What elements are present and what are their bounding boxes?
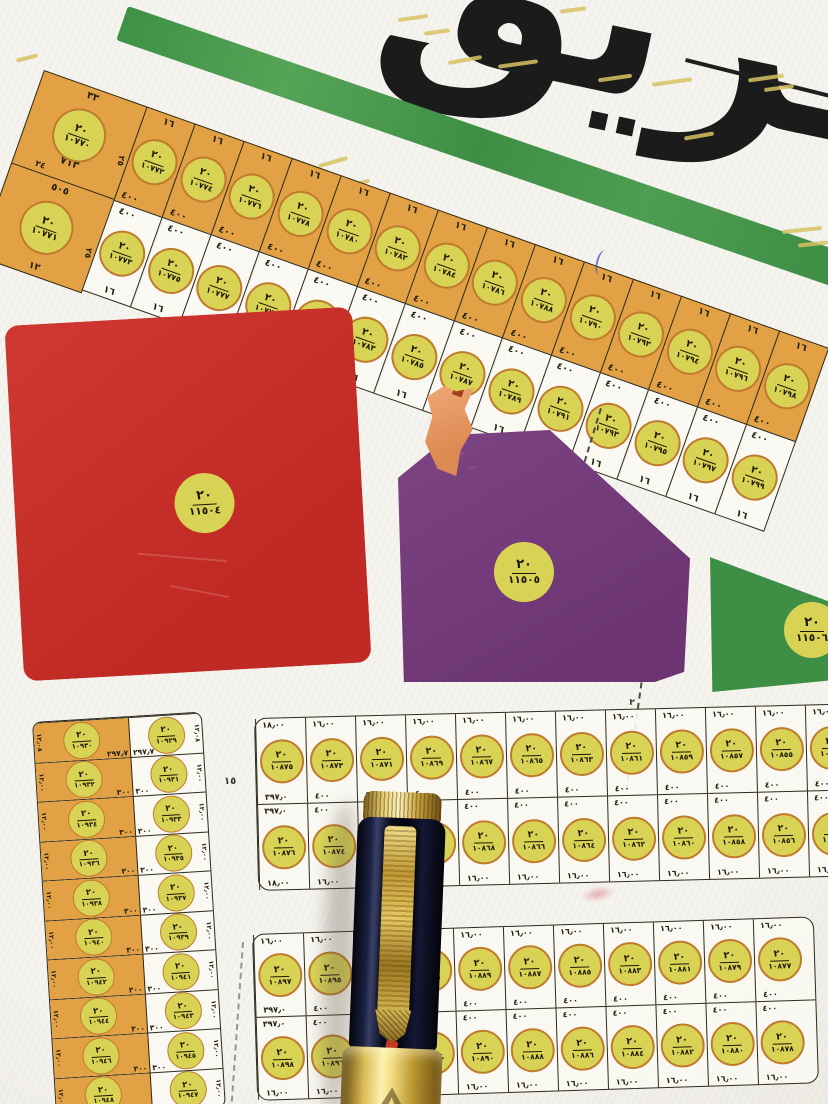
plot-parcel: ١٦٫٠٠ ٢٠ ١٠٨٦٧ ٤٠٠ <box>455 713 507 799</box>
block-number: ٢٠ <box>321 748 341 761</box>
area-label: ٤٠٠ <box>614 798 629 807</box>
area-label: ٤٠٠ <box>514 800 529 809</box>
plot-number: ١٠٨٨٦ <box>571 1050 594 1060</box>
area-label: ٤٠٠ <box>315 791 330 800</box>
plot-parcel: ١٦٫٠٠ ٢٠ ١٠٨٥٧ ٤٠٠ <box>705 707 757 793</box>
plot-parcel-orange: ١٢٫٠٠ ٢٠ ١٠٩٤٠ ٣٠٠ <box>45 915 143 959</box>
plot-number: ١٠٩٤٧ <box>177 1091 198 1101</box>
area-label: ٤٠٠ <box>750 429 770 445</box>
plot-number-sticker: ٢٠ ١٠٩٤٧ <box>168 1070 207 1104</box>
plot-number: ١٠٨٥٦ <box>772 836 795 846</box>
area-label: ٤٠٠ <box>613 1008 628 1017</box>
plot-number-sticker: ٢٠ ١٠٨٧٦ <box>261 824 306 869</box>
dimension-label: ١٦ <box>686 490 701 504</box>
pen <box>331 790 460 1104</box>
plot-number-sticker: ٢٠ ١٠٩٣٢ <box>65 760 104 799</box>
plot-parcel: ١٦٫٠٠ ٢٠ ١٠٨٨٣ ٤٠٠ <box>603 922 656 1006</box>
plot-parcel: ١٦٫٠٠ ٢٠ ١٠٨٥٣ ٤٠٠ <box>805 704 828 790</box>
plot-parcel: ٤٠٠ ٢٠ ١٠٨٨٦ ١٦٫٠٠ <box>555 1007 608 1091</box>
plot-parcel: ٤٠٠ ٢٠ ١٠٨٩٠ ١٦٫٠٠ <box>456 1010 509 1094</box>
pen-gold-barrel <box>340 1046 443 1104</box>
area-label: ٤٠٠ <box>215 239 235 255</box>
plot-number: ١١٥٠٦ <box>796 632 828 645</box>
area-label: ٣٠٠ <box>142 904 156 914</box>
area-label: ٤٠٠ <box>712 1005 727 1014</box>
area-label: ٤٠٠ <box>458 326 478 342</box>
dimension-label: ١٦٫٠٠ <box>616 1077 639 1087</box>
block-number: ٢٠ <box>271 749 291 762</box>
plot-parcel: ١٦٫٠٠ ٢٠ ١٠٨٥٩ ٤٠٠ <box>655 708 707 794</box>
dimension-label: ١٦٫٠٠ <box>660 923 683 933</box>
plot-number: ١٠٩٣٧ <box>165 894 186 904</box>
dimension-label: ١٢٫٠٠ <box>197 803 206 822</box>
dimension-label: ١٦٫٠٠ <box>712 709 735 719</box>
road-dash-mark <box>318 156 348 168</box>
plot-number: ١٠٩٢٩ <box>156 736 177 746</box>
plot-number-sticker: ٢٠ ١٠٩٣٩ <box>159 913 198 952</box>
block-number: ٢٠ <box>474 831 494 844</box>
plot-number: ١٠٩٣١ <box>158 775 179 785</box>
plot-number: ١٠٩٤٨ <box>93 1096 114 1104</box>
area-label: ٤٠٠ <box>765 780 780 789</box>
plot-number: ١٠٩٤٥ <box>175 1051 196 1061</box>
plot-number-sticker: ٢٠ ١٠٧٧١ <box>12 194 81 263</box>
plot-number: ١٠٨٧٣ <box>320 761 343 771</box>
dimension-label: ١٢٫٠٨ <box>192 724 201 743</box>
plot-parcel: ٣٩٧٫٠ ٢٠ ١٠٨٩٨ ١٦٫٠٠ <box>256 1016 309 1100</box>
plot-number: ١٠٨٧٥ <box>270 762 293 772</box>
plot-number-sticker: ٢٠ ١١٥٠٦ <box>784 602 828 658</box>
dimension-label: ١٦٫٠٠ <box>462 715 485 725</box>
dimension-label: ١٦٫٠٠ <box>566 1079 589 1089</box>
street-width-label: ١٥ <box>224 776 236 787</box>
block-number: ٢٠ <box>621 741 641 754</box>
block-number: ٢٠ <box>570 954 590 967</box>
dimension-label: ١٦٫٠٠ <box>516 1080 539 1090</box>
plot-number: ١٠٩٣٩ <box>168 933 189 943</box>
plot-parcel: ١٦٫٠٠ ٢٠ ١٠٨٩٧ ٣٩٧٫٠ <box>253 933 306 1017</box>
area-label: ٤٠٠ <box>515 786 530 795</box>
plot-parcel: ٤٠٠ ٢٠ ١٠٨٨٠ ١٦٫٠٠ <box>705 1002 758 1086</box>
area-label: ٣٠٠ <box>138 825 152 835</box>
plot-number: ١٠٩٣٤ <box>76 820 97 830</box>
dimension-label: ١٦٫٠٠ <box>617 870 640 880</box>
area-label: ٣٠٠ <box>126 945 140 955</box>
area-label: ٤٠٠ <box>555 360 575 376</box>
block-number: ٢٠ <box>773 823 793 836</box>
dimension-label: ١٦٫٠٠ <box>460 930 483 940</box>
dimension-label: ١٦٫٠٠ <box>512 714 535 724</box>
dimension-label: ١٦٫٠٠ <box>567 871 590 881</box>
plot-parcel: ٤٠٠ ٢٠ ١٠٨٥٤ ١٦٫٠٠ <box>807 790 828 876</box>
area-label: ٤٠٠ <box>665 783 680 792</box>
block-number: ٢٠ <box>671 740 691 753</box>
plot-parcel-white: ٣٠٠ ٢٠ ١٠٩٤٥ ١٢٫٠٠ <box>148 1029 222 1072</box>
dimension-label: ١٦٫٠٠ <box>562 713 585 723</box>
plot-number: ١٠٨٩٠ <box>471 1053 494 1063</box>
plot-number-sticker: ٢٠ ١٠٨٥٣ <box>809 725 828 770</box>
plot-number: ١٠٨٨٠ <box>721 1045 744 1055</box>
block-number: ٢٠ <box>672 1034 692 1047</box>
area-label: ٤٠٠ <box>714 795 729 804</box>
plot-number: ١٠٩٤١ <box>170 973 191 983</box>
dimension-label: ١٦ <box>745 323 760 337</box>
dimension-label: ١٢٫٠٠ <box>40 812 49 831</box>
plot-number: ١٠٨٩٧ <box>268 977 291 987</box>
block-number: ٢٠ <box>421 746 441 759</box>
plot-row: ١٨٫٠٠ ٢٠ ١٠٨٧٥ ٣٩٧٫٠ ١٦٫٠٠ ٢٠ ١٠٨٧٣ ٤٠٠ <box>255 704 828 804</box>
area-label: ٤٠٠ <box>763 990 778 999</box>
plot-parcel: ١٨٫٠٠ ٢٠ ١٠٨٧٥ ٣٩٧٫٠ <box>255 718 307 804</box>
plot-number-sticker: ٢٠ ١٠٨٧٣ <box>309 737 354 782</box>
area-label: ٥٠٥ <box>49 182 70 198</box>
plot-parcel: ٤٠٠ ٢٠ ١٠٨٦٨ ١٦٫٠٠ <box>457 799 509 885</box>
dimension-label: ١٢٫٠٠ <box>54 1049 63 1068</box>
plot-parcel-orange: ١٢٫٠٠ ٢٠ ١٠٩٤٦ ٣٠٠ <box>52 1033 150 1077</box>
plot-number-sticker: ٢٠ ١٠٨٨٥ <box>557 943 602 988</box>
area-label: ٤٠٠ <box>409 308 429 324</box>
plot-number-sticker: ٢٠ ١٠٩٣٧ <box>156 873 195 912</box>
dimension-label: ١٢٫٠٠ <box>45 891 54 910</box>
plot-parcel-orange: ١٢٫٠٠ ٢٠ ١٠٩٣٨ ٣٠٠ <box>43 876 141 920</box>
plot-number-sticker: ٢٠ ١٠٩٤١ <box>161 952 200 991</box>
plot-number-sticker: ٢٠ ١٠٨٦٧ <box>459 733 504 778</box>
plot-parcel-orange: ١٢٫٠٠ ٢٠ ١٠٩٣٤ ٣٠٠ <box>38 797 136 841</box>
dimension-label: ١٦٫٠٠ <box>710 922 733 932</box>
block-number: ٢٠ <box>524 829 544 842</box>
plot-parcel: ٤٠٠ ٢٠ ١٠٨٥٨ ١٦٫٠٠ <box>707 793 759 879</box>
block-number: ٢٠ <box>823 822 828 835</box>
plot-number: ١٠٨٨١ <box>668 964 691 974</box>
dimension-label: ١٦ <box>161 116 176 130</box>
area-label: ٤٠٠ <box>713 991 728 1000</box>
area-label: ٤٠٠ <box>361 291 381 307</box>
block-number: ٢٠ <box>771 737 791 750</box>
dimension-label: ١٢٫٠٠ <box>57 1088 66 1104</box>
plot-parcel: ٤٠٠ ٢٠ ١٠٨٦٤ ١٦٫٠٠ <box>557 796 609 882</box>
plot-number-sticker: ٢٠ ١٠٧٩٩ <box>726 448 785 507</box>
area-label: ٣٠٠ <box>129 984 143 994</box>
block-number: ٢٠ <box>622 1036 642 1049</box>
plot-number: ١٠٨٥٣ <box>820 749 828 759</box>
block-number: ٢٠ <box>272 1047 292 1060</box>
dimension-label: ٢٥ <box>114 154 126 166</box>
area-label: ٤٠٠ <box>613 994 628 1003</box>
plot-parcel: ١٦٫٠٠ ٢٠ ١٠٨٦٩ ٤٠٠ <box>405 714 457 800</box>
block-number: ٢٠ <box>270 964 290 977</box>
dimension-label: ١٢٫٠٠ <box>200 842 209 861</box>
area-label: ٤٠٠ <box>664 797 679 806</box>
block-number: ٢٠ <box>522 1039 542 1052</box>
area-label: ٤٠٠ <box>814 793 828 802</box>
block-number: ٢٠ <box>371 747 391 760</box>
plot-number-sticker: ٢٠ ١٠٩٣٠ <box>62 721 101 760</box>
area-label: ٤٠٠ <box>166 222 186 238</box>
plot-parcel-orange: ١٢٫٠٠ ٢٠ ١٠٩٤٢ ٣٠٠ <box>48 955 146 999</box>
plot-number: ١٠٨٦٧ <box>470 757 493 767</box>
block-number: ٢٠ <box>572 1037 592 1050</box>
dimension-label: ١٦٫٠٠ <box>812 707 828 717</box>
block-number: ٢٠ <box>769 948 789 961</box>
plot-number-sticker: ٢٠ ١٠٨٦٣ <box>559 731 604 776</box>
dimension-label: ١٦ <box>259 150 274 164</box>
plot-number: ١٠٨٥٩ <box>670 753 693 763</box>
plot-number-sticker: ٢٠ ١٠٨٧٨ <box>759 1020 804 1065</box>
plot-number-sticker: ٢٠ ١٠٨٦٥ <box>509 732 554 777</box>
block-number: ٢٠ <box>520 956 540 969</box>
plot-number-sticker: ٢٠ ١٠٩٣٥ <box>154 834 193 873</box>
plot-parcel: ١٦٫٠٠ ٢٠ ١٠٨٧٧ ٤٠٠ <box>753 918 806 1002</box>
plot-number: ١٠٩٣٠ <box>71 741 92 751</box>
area-label: ٣٠٠ <box>119 827 133 837</box>
area-label: ٤٠٠ <box>463 1013 478 1022</box>
plot-parcel: ١٦٫٠٠ ٢٠ ١٠٨٥٥ ٤٠٠ <box>755 706 807 792</box>
plot-parcel-orange: ١٢٫٠٠ ٢٠ ١٠٩٤٤ ٣٠٠ <box>50 994 148 1038</box>
red-smudge <box>579 883 617 905</box>
area-label: ٤٠٠ <box>565 785 580 794</box>
area-label: ٤٠٠ <box>563 1010 578 1019</box>
plot-number-sticker: ٢٠ ١٠٩٤٠ <box>74 918 113 957</box>
area-label: ٣٠٠ <box>147 983 161 993</box>
area-label: ٣٠٠ <box>152 1062 166 1072</box>
block-number: ٢٠ <box>573 828 593 841</box>
plot-number: ١٠٨٧١ <box>370 760 393 770</box>
dimension-label: ١٦٫٠٠ <box>760 920 783 930</box>
plot-number: ١٠٨٨٥ <box>568 967 591 977</box>
block-number: ٢٠ <box>821 736 828 749</box>
plot-number-sticker: ٢٠ ١٠٨٥٤ <box>811 811 828 856</box>
plot-parcel: ٤٠٠ ٢٠ ١٠٨٨٨ ١٦٫٠٠ <box>506 1009 559 1093</box>
area-label: ٤٠٠ <box>701 412 721 428</box>
plot-number: ١٠٨٨٤ <box>621 1049 644 1059</box>
plot-number-sticker: ٢٠ ١١٥٠٥ <box>494 542 554 602</box>
area-label: ٤٠٠ <box>312 274 332 290</box>
dimension-label: ١٦ <box>794 340 809 354</box>
plot-number-sticker: ٢٠ ١٠٨٦٩ <box>409 735 454 780</box>
plot-number-sticker: ٢٠ ١٠٨٨١ <box>657 940 702 985</box>
block-number: ٢٠ <box>192 487 217 506</box>
block-number: ٢٠ <box>471 745 491 758</box>
street-centerline <box>231 942 244 1102</box>
area-label: ٣٠٠ <box>131 1024 145 1034</box>
plot-number: ١٠٨٥٥ <box>770 750 793 760</box>
plot-number-sticker: ٢٠ ١٠٨٨٧ <box>507 945 552 990</box>
block-number: ٢٠ <box>721 738 741 751</box>
plot-number-sticker: ٢٠ ١٠٩٣٤ <box>67 800 106 839</box>
plot-number-sticker: ٢٠ ١٠٨٨٤ <box>610 1024 655 1069</box>
plot-parcel: ٤٠٠ ٢٠ ١٠٨٦٠ ١٦٫٠٠ <box>657 794 709 880</box>
dimension-label: ١٦٫٠٠ <box>312 719 335 729</box>
plot-number-sticker: ٢٠ ١٠٧٩٨ <box>758 357 817 416</box>
plot-number-sticker: ٢٠ ١٠٨٦١ <box>609 730 654 775</box>
plot-number-sticker: ٢٠ ١٠٨٨٢ <box>660 1023 705 1068</box>
area-label: ٤٠٠ <box>117 205 137 221</box>
plot-number-sticker: ٢٠ ١٠٩٣٣ <box>151 794 190 833</box>
left-plot-rows: ١٢٫٠٨ ٢٠ ١٠٩٣٠ ٢٩٧٫٧ ٢٩٧٫٧ ٢٠ ١٠٩٢٩ <box>33 713 225 1104</box>
area-label: ٤٠٠ <box>604 377 624 393</box>
dimension-label: ١٦٫٠٠ <box>612 712 635 722</box>
plot-number-sticker: ٢٠ ١٠٨٧٩ <box>707 938 752 983</box>
plot-parcel: ٤٠٠ ٢٠ ١٠٨٧٨ ١٦٫٠٠ <box>755 1001 808 1085</box>
plot-parcel: ١٦٫٠٠ ٢٠ ١٠٨٦٥ ٤٠٠ <box>505 712 557 798</box>
area-label: ٤٠٠ <box>465 788 480 797</box>
plot-number: ١٠٨٦٨ <box>472 843 495 853</box>
plot-parcel-orange: ١٢٫٠٠ ٢٠ ١٠٩٣٦ ٣٠٠ <box>40 836 138 880</box>
plot-number-sticker: ٢٠ ١٠٨٧٧ <box>757 937 802 982</box>
plot-number-sticker: ٢٠ ١٠٩٣١ <box>149 755 188 794</box>
dimension-label: ١٦٫٠٠ <box>667 868 690 878</box>
block-number: ٢٠ <box>274 835 294 848</box>
plot-parcel-white: ٣٠٠ ٢٠ ١٠٩٣١ ١٢٫٠٠ <box>131 753 205 796</box>
block-number: ٢٠ <box>673 826 693 839</box>
area-label: ٣٩٧٫٠ <box>264 806 287 816</box>
plot-number-sticker: ٢٠ ١٠٨٦٨ <box>461 819 506 864</box>
plot-parcel: ٣٩٧٫٠ ٢٠ ١٠٨٧٦ ١٨٫٠٠ <box>257 804 309 890</box>
area-label: ٣٠٠ <box>124 905 138 915</box>
dimension-label: ١٢٫٠٠ <box>209 1000 218 1019</box>
plot-number-sticker: ٢٠ ١٠٨٦٢ <box>611 816 656 861</box>
dimension-label: ١٦ <box>356 185 371 199</box>
plot-number: ١٠٨٨٢ <box>671 1047 694 1057</box>
dimension-label: ١٦٫٠٠ <box>466 1082 489 1092</box>
area-label: ٣٠٠ <box>121 866 135 876</box>
area-label: ٤٠٠ <box>615 784 630 793</box>
plot-number-sticker: ٢٠ ١٠٨٥٥ <box>759 726 804 771</box>
plot-number: ١٠٩٣٣ <box>161 815 182 825</box>
dimension-label: ١٦٫٠٠ <box>717 867 740 877</box>
plot-number-sticker: ٢٠ ١٠٨٩٧ <box>257 952 302 997</box>
plot-parcel: ١٦٫٠٠ ٢٠ ١٠٨٨١ ٤٠٠ <box>653 921 706 1005</box>
plot-number: ١٠٩٤٣ <box>173 1012 194 1022</box>
block-number: ٢٠ <box>723 824 743 837</box>
plot-number-sticker: ٢٠ ١٠٧٧٠ <box>45 101 114 170</box>
plot-parcel: ٤٠٠ ٢٠ ١٠٨٨٢ ١٦٫٠٠ <box>655 1004 708 1088</box>
plot-number: ١٠٨٥٨ <box>722 837 745 847</box>
dimension-label: ١٦٫٠٠ <box>766 1072 789 1082</box>
plot-number: ١٠٨٦٠ <box>672 839 695 849</box>
dimension-label: ١٢٫٠٠ <box>37 773 46 792</box>
dimension-label: ١٢٫٠٠ <box>195 763 204 782</box>
plot-parcel: ٤٠٠ ٢٠ ١٠٨٥٦ ١٦٫٠٠ <box>757 792 809 878</box>
plot-number: ١٠٨٧٧ <box>768 961 791 971</box>
pen-emblem <box>378 1087 405 1104</box>
dimension-label: ١٦٫٠٠ <box>817 865 828 875</box>
block-number: ٢٠ <box>669 951 689 964</box>
plot-number: ١٠٩٤٤ <box>88 1017 109 1027</box>
dimension-label: ١٢٫٠٠ <box>207 960 216 979</box>
plot-number: ١٠٨٦٣ <box>570 755 593 765</box>
plot-number-sticker: ٢٠ ١٠٩٤٨ <box>84 1075 123 1104</box>
dimension-label: ١٦٫٠٠ <box>610 925 633 935</box>
area-label: ٤٠٠ <box>762 1004 777 1013</box>
dimension-label: ١٢ <box>27 260 42 274</box>
plot-number-sticker: ٢٠ ١٠٨٩٨ <box>260 1035 305 1080</box>
plot-number: ١٠٨٩٨ <box>271 1059 294 1069</box>
area-label: ٢٩٧٫٧ <box>133 746 155 756</box>
dimension-label: ١٢٫٠٠ <box>204 921 213 940</box>
plot-parcel: ٤٠٠ ٢٠ ١٠٨٦٦ ١٦٫٠٠ <box>507 798 559 884</box>
road-dash-mark <box>16 53 38 62</box>
dimension-label: ٢٤ <box>34 159 47 172</box>
plot-number-sticker: ٢٠ ١٠٨٥٩ <box>659 729 704 774</box>
block-number: ٢٠ <box>800 615 824 632</box>
dimension-label: ١٦٫٠٠ <box>362 718 385 728</box>
plot-number: ١٠٩٣٢ <box>74 781 95 791</box>
dimension-label: ١٦ <box>151 301 166 315</box>
dimension-label: ١٦ <box>210 133 225 147</box>
road-dash-mark <box>782 226 822 234</box>
area-label: ٣٠٠ <box>135 786 149 796</box>
plot-parcel-white: ٣٠٠ ٢٠ ١٠٩٤٣ ١٢٫٠٠ <box>146 990 220 1033</box>
area-label: ٤٠٠ <box>663 1007 678 1016</box>
dimension-label: ١٢٫٠٨ <box>35 733 44 752</box>
area-label: ٣٠٠ <box>133 1063 147 1073</box>
plot-parcel: ١٦٫٠٠ ٢٠ ١٠٨٧٩ ٤٠٠ <box>703 919 756 1003</box>
plot-number-sticker: ٢٠ ١٠٨٧٥ <box>259 738 304 783</box>
dimension-label: ١٢٫٠٠ <box>49 970 58 989</box>
plot-number-sticker: ٢٠ ١٠٨٨٠ <box>710 1021 755 1066</box>
block-number: ٢٠ <box>472 1040 492 1053</box>
plot-number: ١٠٨٦٤ <box>572 841 595 851</box>
left-plot-block: ١٢٫٠٨ ٢٠ ١٠٩٣٠ ٢٩٧٫٧ ٢٩٧٫٧ ٢٠ ١٠٩٢٩ <box>32 712 226 1104</box>
area-label: ٤٠٠ <box>715 781 730 790</box>
plot-number-sticker: ٢٠ ١٠٩٤٤ <box>79 997 118 1036</box>
dimension-label: ١٦٫٠٠ <box>560 927 583 937</box>
plot-number: ١٠٩٤٢ <box>86 978 107 988</box>
plot-number-sticker: ٢٠ ١٠٩٣٦ <box>69 839 108 878</box>
plot-parcel-white: ٣٠٠ ٢٠ ١٠٩٤١ ١٢٫٠٠ <box>143 950 217 993</box>
area-label: ٤٠٠ <box>513 1011 528 1020</box>
dimension-label: ١٦ <box>102 283 117 297</box>
plot-number: ١١٥٠٤ <box>189 504 222 519</box>
area-label: ٤٠٠ <box>563 996 578 1005</box>
area-label: ٤٠٠ <box>513 997 528 1006</box>
plot-number-sticker: ٢٠ ١٠٨٦٦ <box>511 818 556 863</box>
dimension-label: ١٦٫٠٠ <box>260 936 283 946</box>
plot-parcel-white: ٣٠٠ ٢٠ ١٠٩٣٧ ١٢٫٠٠ <box>139 871 213 914</box>
dimension-label: ١٢٫٠٠ <box>52 1009 61 1028</box>
dimension-label: ١٦٫٠٠ <box>767 866 790 876</box>
plot-number: ١٠٩٤٦ <box>91 1057 112 1067</box>
plot-parcel-white: ٣٠٠ ٢٠ ١٠٩٣٥ ١٢٫٠٠ <box>136 832 210 875</box>
plot-number-sticker: ٢٠ ١٠٨٨٨ <box>510 1028 555 1073</box>
area-label: ٤٠٠ <box>564 799 579 808</box>
plot-number: ١٠٨٦٥ <box>520 756 543 766</box>
dimension-label: ١٦ <box>453 219 468 233</box>
plot-number: ١٠٨٨٧ <box>518 969 541 979</box>
plot-parcel: ١٦٫٠٠ ٢٠ ١٠٨٦١ ٤٠٠ <box>605 709 657 795</box>
dimension-label: ١٦٫٠٠ <box>467 873 490 883</box>
dimension-label: ١٦٫٠٠ <box>517 872 540 882</box>
dimension-label: ١٦٫٠٠ <box>716 1074 739 1084</box>
plot-number: ١١٥٠٥ <box>508 574 540 587</box>
dimension-label: ١٨٫٠٠ <box>267 878 290 888</box>
dimension-label: ١٦ <box>307 168 322 182</box>
area-label: ٣٠٠ <box>150 1023 164 1033</box>
plot-parcel: ١٦٫٠٠ ٢٠ ١٠٨٦٣ ٤٠٠ <box>555 710 607 796</box>
plot-number: ١٠٨٥٧ <box>720 751 743 761</box>
plot-number: ١٠٨٧٦ <box>272 848 295 858</box>
dimension-label: ١٢٫٠٠ <box>42 852 51 871</box>
plot-parcel-white: ٢٩٧٫٧ ٢٠ ١٠٩٢٩ ١٢٫٠٨ <box>129 714 203 757</box>
plot-number: ١٠٨٦١ <box>620 754 643 764</box>
plot-number-sticker: ٢٠ ١٠٩٣٨ <box>72 878 111 917</box>
dimension-label: ١٦٫٠٠ <box>412 717 435 727</box>
plot-number: ١٠٨٦٦ <box>522 842 545 852</box>
area-label: ٣٩٧٫٠ <box>265 792 288 802</box>
dimension-label: ١٦ <box>502 237 517 251</box>
area-label: ٣٠٠ <box>116 787 130 797</box>
